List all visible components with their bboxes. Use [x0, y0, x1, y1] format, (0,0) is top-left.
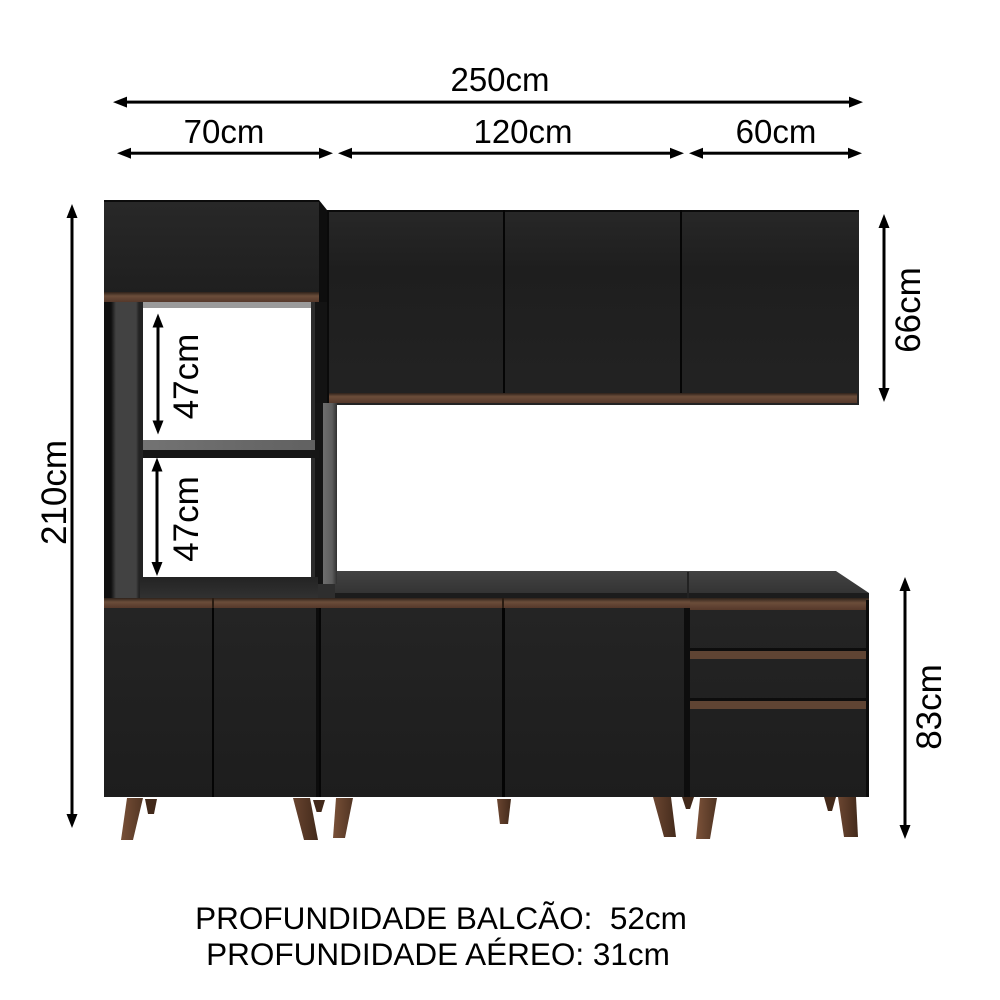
svg-text:47cm: 47cm: [167, 476, 206, 562]
svg-text:60cm: 60cm: [736, 113, 817, 150]
svg-text:83cm: 83cm: [910, 664, 949, 750]
svg-text:250cm: 250cm: [450, 61, 549, 98]
svg-text:PROFUNDIDADE AÉREO: 31cm: PROFUNDIDADE AÉREO: 31cm: [206, 936, 670, 972]
svg-text:120cm: 120cm: [473, 113, 572, 150]
svg-text:66cm: 66cm: [889, 267, 928, 353]
svg-text:47cm: 47cm: [167, 334, 206, 420]
svg-text:PROFUNDIDADE BALCÃO: 52cm: PROFUNDIDADE BALCÃO: 52cm: [195, 900, 687, 936]
svg-text:70cm: 70cm: [184, 113, 265, 150]
svg-text:210cm: 210cm: [35, 440, 74, 545]
